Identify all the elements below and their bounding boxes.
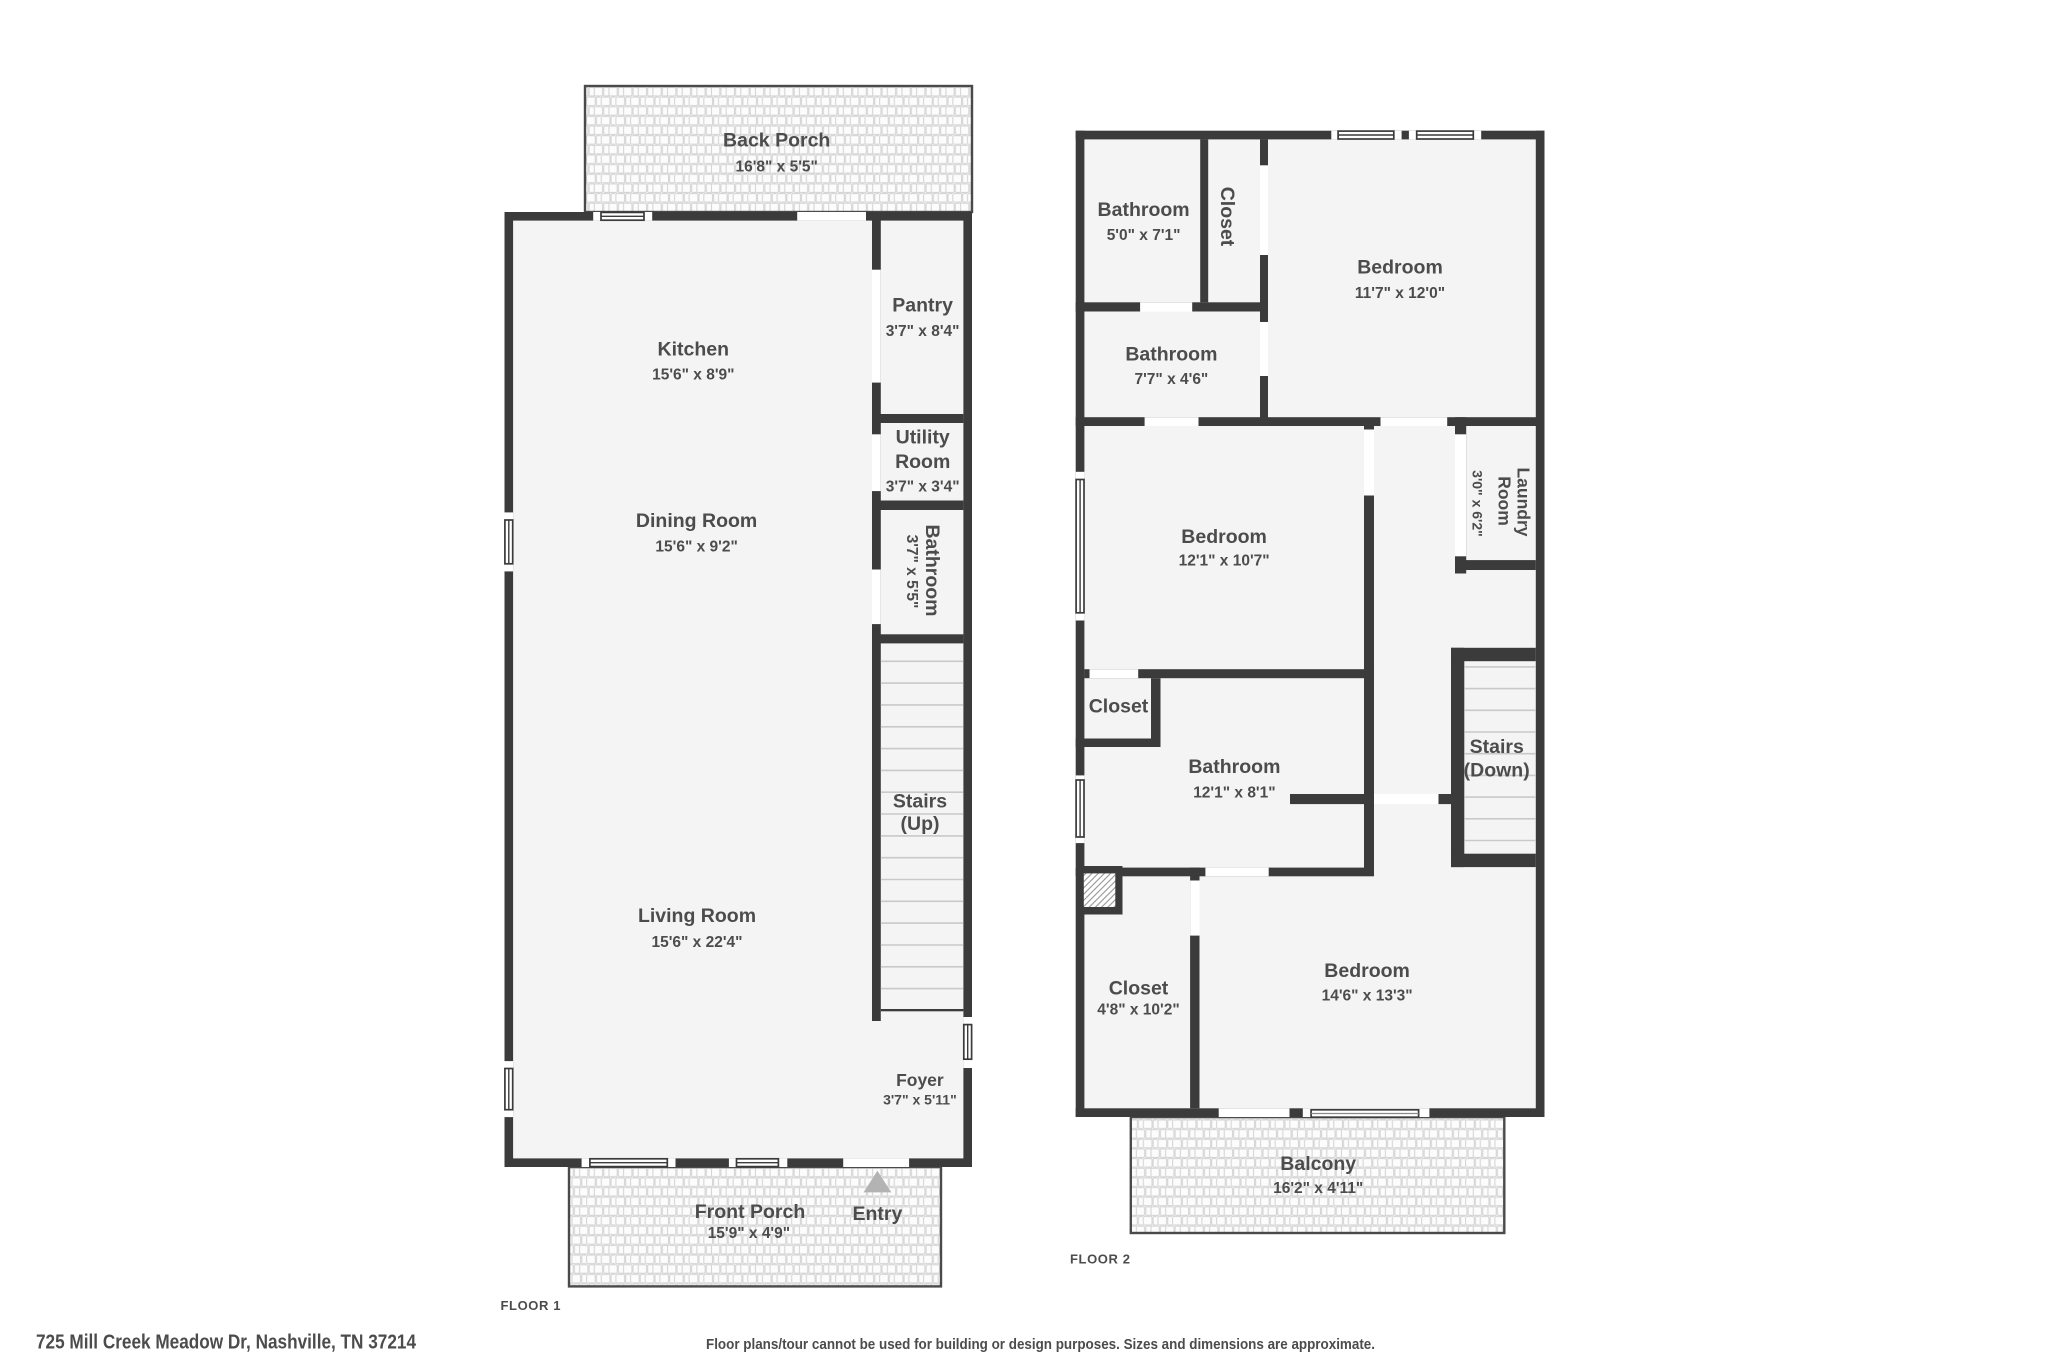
svg-text:FLOOR 1: FLOOR 1 — [501, 1298, 562, 1313]
svg-text:(Down): (Down) — [1464, 760, 1530, 782]
svg-text:4'8" x 10'2": 4'8" x 10'2" — [1097, 1002, 1179, 1019]
svg-text:Bathroom: Bathroom — [921, 524, 943, 616]
svg-text:Back Porch: Back Porch — [723, 130, 830, 152]
svg-text:Pantry: Pantry — [892, 295, 953, 317]
svg-text:Bedroom: Bedroom — [1357, 257, 1443, 279]
svg-text:11'7" x 12'0": 11'7" x 12'0" — [1355, 285, 1445, 302]
svg-text:15'6" x 9'2": 15'6" x 9'2" — [655, 539, 737, 556]
svg-text:Floor plans/tour cannot be use: Floor plans/tour cannot be used for buil… — [706, 1337, 1375, 1353]
svg-text:Entry: Entry — [852, 1203, 902, 1225]
svg-text:(Up): (Up) — [901, 813, 940, 835]
svg-text:Bedroom: Bedroom — [1181, 526, 1267, 548]
svg-text:Stairs: Stairs — [893, 791, 947, 813]
svg-text:Closet: Closet — [1109, 977, 1169, 999]
svg-text:5'0" x 7'1": 5'0" x 7'1" — [1107, 227, 1181, 244]
svg-text:16'2" x 4'11": 16'2" x 4'11" — [1273, 1180, 1363, 1197]
svg-text:3'7" x 5'11": 3'7" x 5'11" — [883, 1091, 957, 1107]
svg-text:15'9" x 4'9": 15'9" x 4'9" — [708, 1225, 790, 1242]
svg-text:12'1" x 8'1": 12'1" x 8'1" — [1193, 784, 1275, 801]
svg-text:15'6" x 22'4": 15'6" x 22'4" — [651, 934, 742, 951]
svg-text:Kitchen: Kitchen — [658, 338, 730, 360]
svg-text:Bathroom: Bathroom — [1125, 343, 1217, 365]
svg-text:Closet: Closet — [1216, 187, 1238, 247]
svg-text:Utility: Utility — [896, 426, 950, 448]
svg-text:Bedroom: Bedroom — [1324, 960, 1410, 982]
svg-text:3'0" x 6'2": 3'0" x 6'2" — [1470, 470, 1486, 537]
svg-text:Laundry: Laundry — [1513, 467, 1533, 536]
svg-text:3'7" x 5'5": 3'7" x 5'5" — [903, 535, 920, 609]
svg-text:14'6" x 13'3": 14'6" x 13'3" — [1322, 988, 1413, 1005]
svg-text:Living Room: Living Room — [638, 905, 756, 927]
svg-text:Balcony: Balcony — [1280, 1153, 1356, 1175]
svg-text:Front Porch: Front Porch — [695, 1201, 806, 1223]
svg-text:Closet: Closet — [1089, 696, 1149, 718]
svg-text:Foyer: Foyer — [896, 1070, 944, 1090]
svg-text:Stairs: Stairs — [1470, 736, 1524, 758]
svg-text:Room: Room — [1494, 476, 1514, 526]
svg-text:Bathroom: Bathroom — [1188, 756, 1280, 778]
svg-text:FLOOR 2: FLOOR 2 — [1070, 1252, 1131, 1267]
svg-text:Dining Room: Dining Room — [636, 510, 757, 532]
svg-text:15'6" x 8'9": 15'6" x 8'9" — [652, 367, 734, 384]
svg-text:3'7" x 3'4": 3'7" x 3'4" — [886, 479, 960, 496]
svg-text:16'8" x 5'5": 16'8" x 5'5" — [735, 158, 817, 175]
svg-text:12'1" x 10'7": 12'1" x 10'7" — [1179, 553, 1270, 570]
svg-text:Room: Room — [895, 451, 950, 473]
svg-text:7'7" x 4'6": 7'7" x 4'6" — [1135, 371, 1209, 388]
svg-text:Bathroom: Bathroom — [1098, 199, 1190, 221]
svg-text:725 Mill Creek Meadow Dr, Nash: 725 Mill Creek Meadow Dr, Nashville, TN … — [36, 1332, 417, 1354]
svg-text:3'7" x 8'4": 3'7" x 8'4" — [886, 323, 960, 340]
